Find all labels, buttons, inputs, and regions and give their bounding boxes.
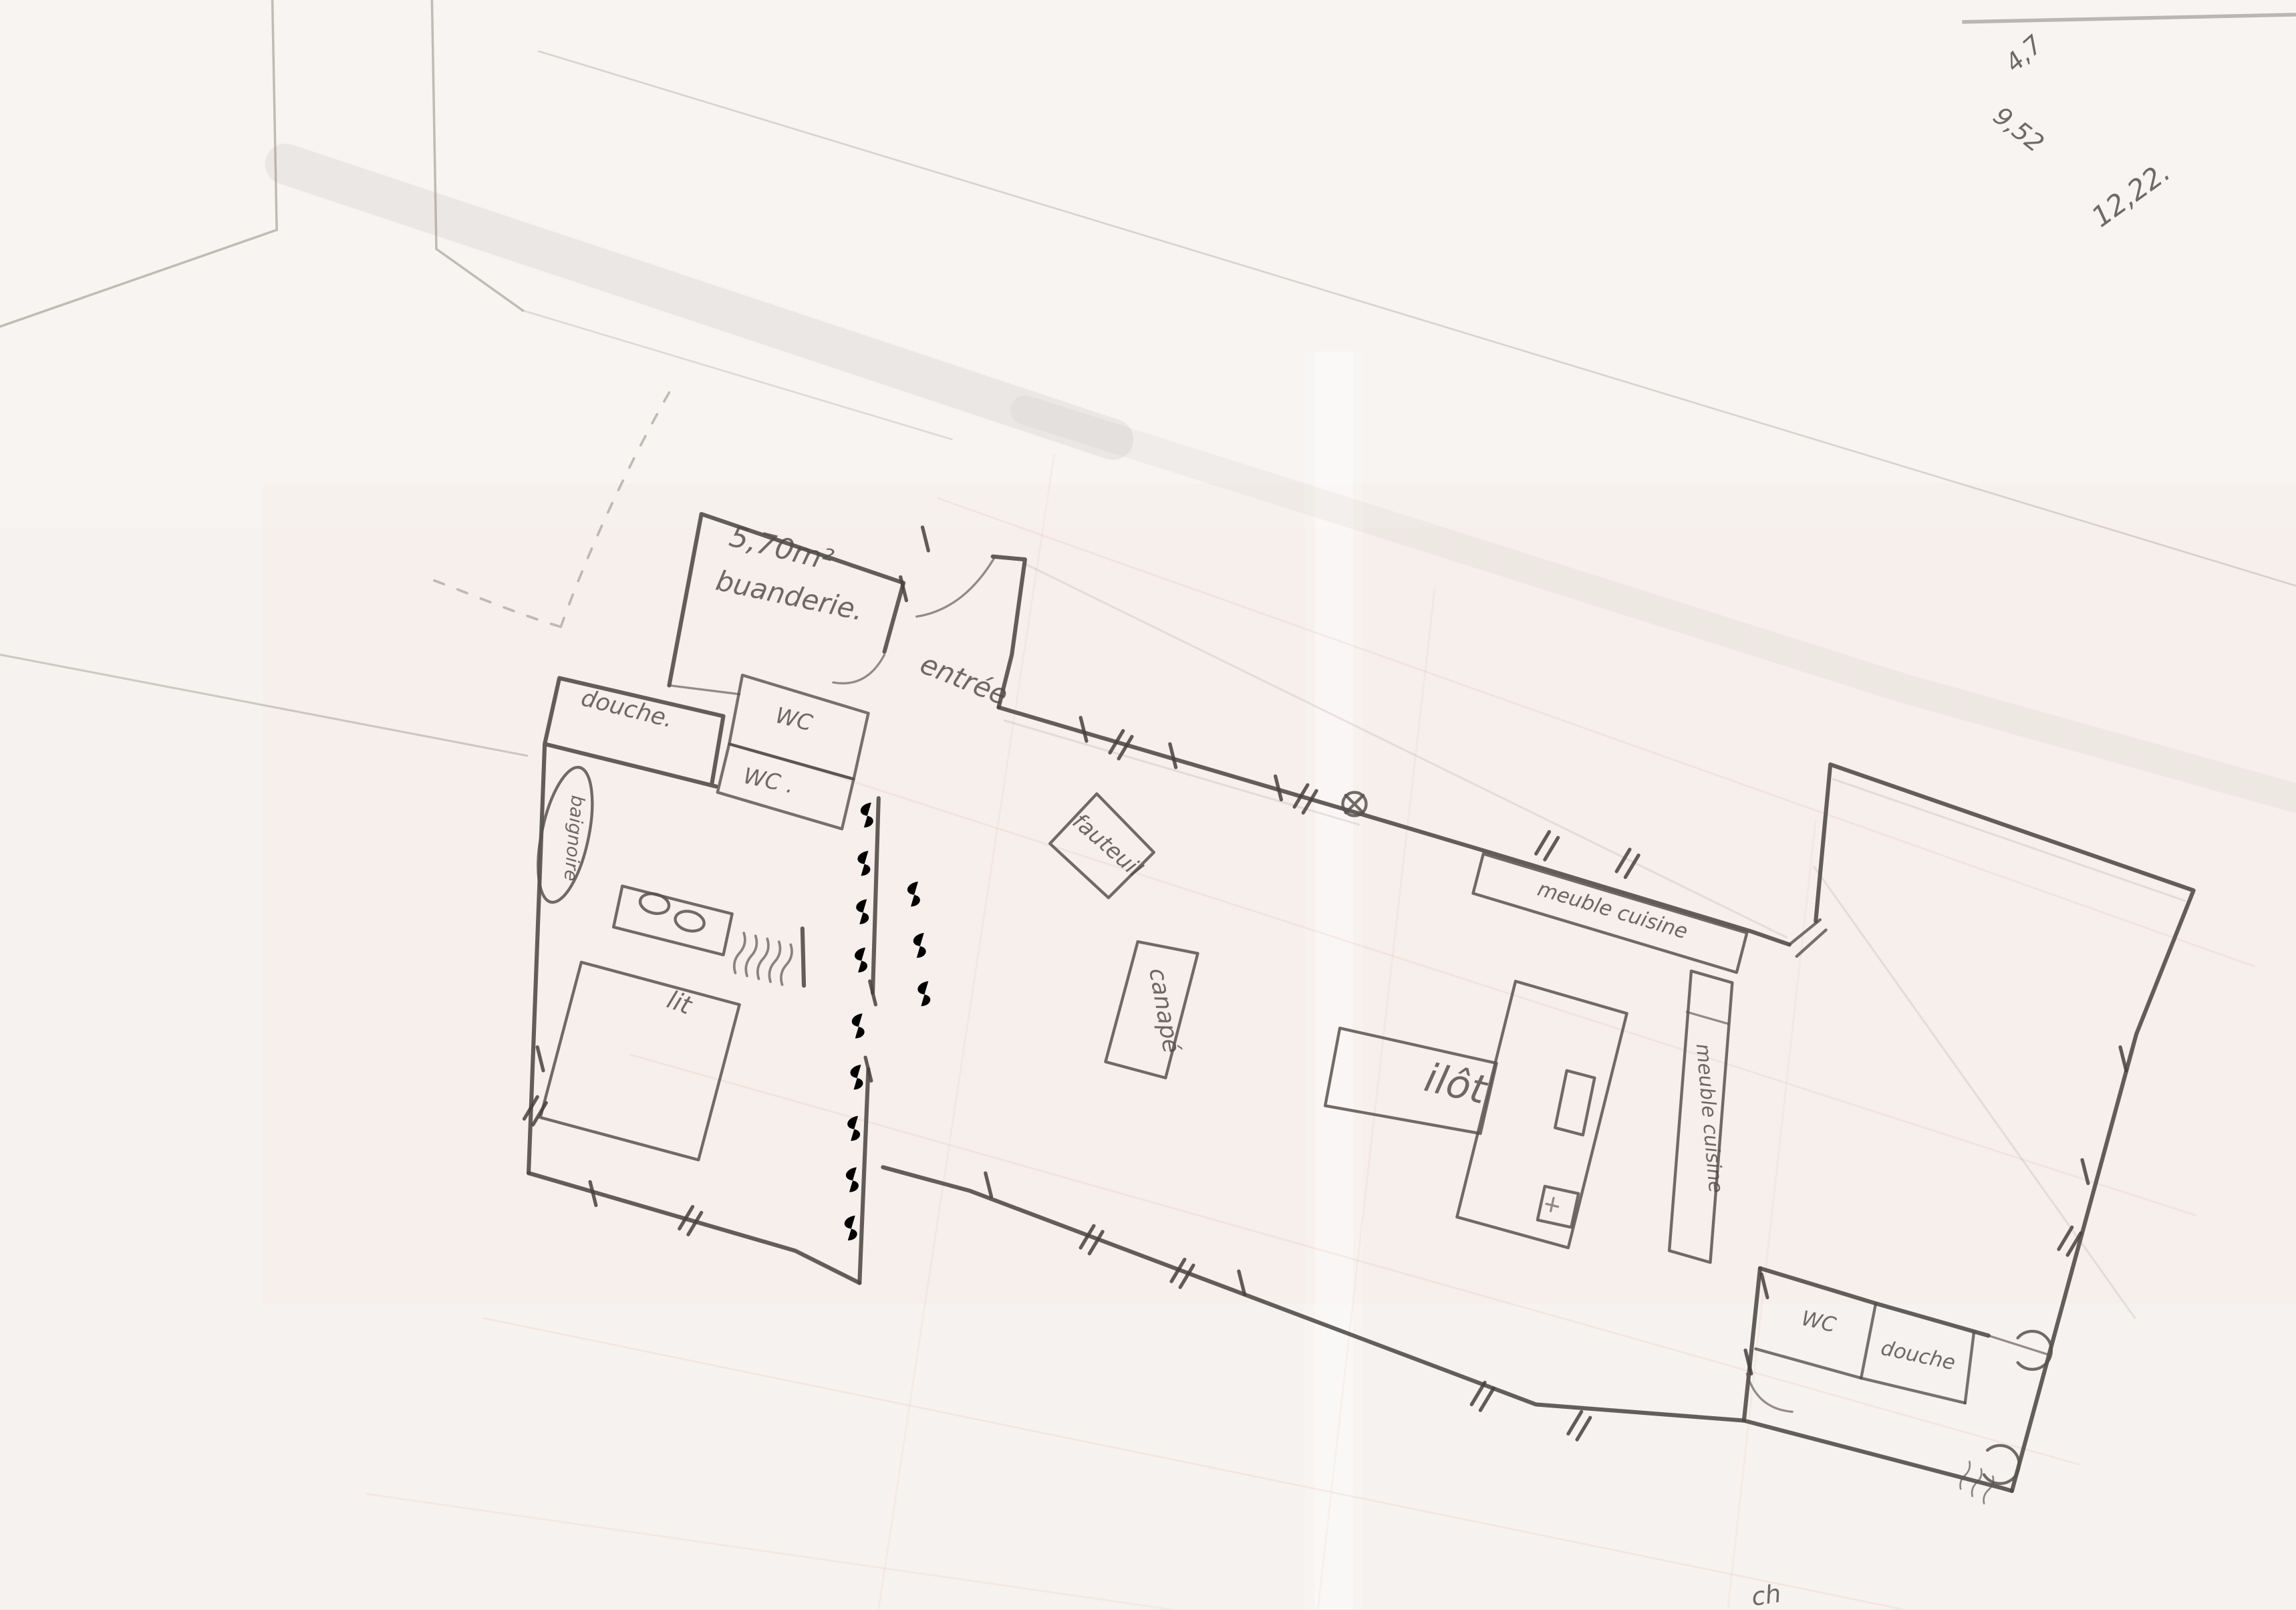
edge-note-ch: ch xyxy=(1749,1579,1783,1609)
radiator-end-wall xyxy=(803,928,804,985)
scanned-floor-plan: 5,70m² buanderie. entrée WC WC . douche.… xyxy=(0,0,2296,1609)
floor-plan-sketch: 5,70m² buanderie. entrée WC WC . douche.… xyxy=(0,0,2296,1609)
